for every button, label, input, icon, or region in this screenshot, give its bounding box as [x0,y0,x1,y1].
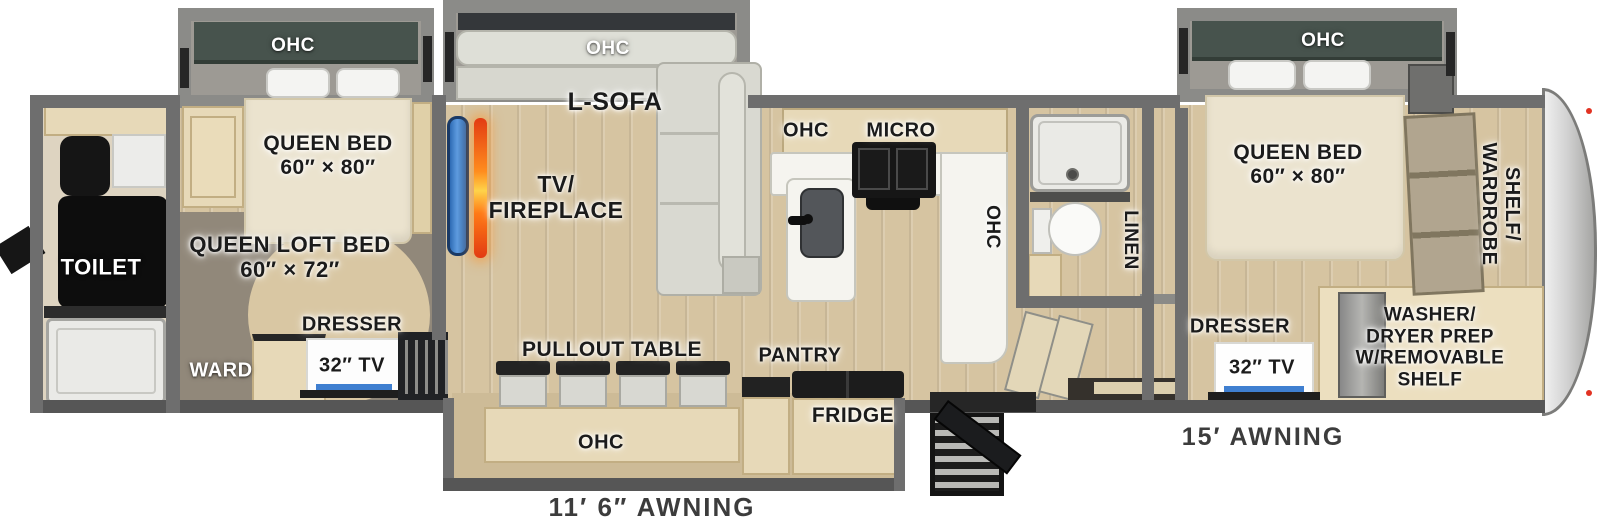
rear-bath-sink [60,136,110,196]
dinette-chair-3 [619,375,667,407]
tv-fireplace-label: TV/ FIREPLACE [489,171,624,223]
wall-bath-right [1142,108,1154,400]
dinette-chair-4-back [676,361,730,375]
awning-left-label: 11′ 6″ AWNING [549,493,756,520]
wall-rear-end [30,95,43,413]
rear-bath-divider [44,306,168,318]
awning-right-label: 15′ AWNING [1182,423,1345,452]
pantry-label: PANTRY [759,345,842,368]
rear-toilet [58,196,168,308]
wall-top-rear [30,95,180,108]
mid-bath-vanity [1028,254,1062,300]
shelf-wardrobe-cabinet [1403,112,1484,296]
ward-label: WARD [189,360,252,383]
pantry-counter-top [742,377,790,397]
sofa-chaise-backroll [718,72,746,272]
rear-bath-counter-nook [112,134,166,188]
front-dresser-label: DRESSER [1190,316,1290,339]
sofa-slide-window [445,32,454,82]
wall-top-mid-2 [748,95,1180,108]
rear-bed-pillow-left [266,68,330,98]
fridge-label: FRIDGE [812,404,894,428]
rear-ohc-label: OHC [271,35,315,57]
kitchen-counter-column [940,152,1008,364]
dinette-chair-1-back [496,361,550,375]
wall-bottom-left [30,400,454,413]
stove-grate-right [896,148,928,190]
linen-label: LINEN [1119,210,1141,270]
dinette-chair-4 [679,375,727,407]
queen-loft-bed-label: QUEEN LOFT BED 60″ × 72″ [189,232,390,282]
mid-toilet-bowl [1048,202,1102,256]
dinette-chair-2 [559,375,607,407]
wall-rearbath-divider [166,95,180,413]
front-slide-window-right [1446,32,1455,76]
toilet-label: TOILET [61,254,142,279]
wall-bedroom2-living [432,106,446,340]
rear-dresser-label: DRESSER [302,314,402,337]
rear-wardrobe-panel [190,116,236,198]
pantry-cabinet [742,397,790,475]
wall-dinette-right [894,398,905,491]
front-slide-window-left [1179,28,1188,74]
dinette-chair-3-back [616,361,670,375]
stair-landing-tread [1094,382,1180,394]
rear-nightstand-strip [412,102,432,234]
tv-unit [447,116,469,256]
wall-top-front [1450,95,1545,108]
stove-vent [866,198,920,210]
shower-ledge [1030,192,1130,202]
shower-drain [1066,168,1079,181]
dinette-ohc-label: OHC [578,432,624,455]
sofa-ohc-label: OHC [586,38,630,60]
shelf-wardrobe-label: SHELF/ WARDROBE [1477,143,1523,266]
dinette-chair-1 [499,375,547,407]
loft-railing [398,332,448,402]
rear-shower-inner [56,328,156,394]
washer-dryer-label: WASHER/ DRYER PREP W/REMOVABLE SHELF [1356,305,1505,392]
rear-tv-label: 32″ TV [319,355,385,378]
rear-slide-window-left [180,48,189,88]
wall-bath-left [1016,108,1029,308]
front-tv-label: 32″ TV [1229,357,1295,380]
sofa-divider-2 [660,202,718,205]
rear-queen-bed-label: QUEEN BED 60″ × 80″ [263,132,392,180]
rear-slide-window-right [423,36,432,82]
fireplace-flame [474,118,487,258]
front-ohc-label: OHC [1301,30,1345,52]
rear-bath-vanity [44,106,168,136]
front-bed-pillow-left [1228,60,1296,90]
rear-bed-pillow-right [336,68,400,98]
rv-floorplan: OHC QUEEN BED 60″ × 80″ TOILET QUEEN LOF… [0,0,1600,520]
marker-light-top [1586,108,1592,114]
sofa-overhead-cabinet [458,13,735,30]
pullout-table-label: PULLOUT TABLE [522,338,702,362]
sofa-corner-cushion [722,256,760,294]
stove-grate-left [858,148,890,190]
wall-front-bedroom-divider [1175,108,1188,400]
kitchen-micro-label: MICRO [866,120,935,143]
marker-light-bottom [1586,390,1592,396]
front-bed-pillow-right [1303,60,1371,90]
wall-dinette-left [443,398,454,490]
island-faucet-knob [803,214,813,224]
rear-tv-stand [300,390,408,398]
front-cap [1542,88,1597,416]
l-sofa-label: L-SOFA [568,88,663,117]
kitchen-counter-ohc-label: OHC [981,205,1003,249]
front-queen-bed-label: QUEEN BED 60″ × 80″ [1233,141,1362,189]
wall-dinette-bottom [443,478,905,491]
kitchen-ohc-label: OHC [783,120,829,143]
fridge-door-divider [846,371,849,398]
mid-shower-inner [1038,121,1122,185]
sofa-divider-1 [660,132,718,135]
front-tv-stand [1208,392,1320,400]
dinette-chair-2-back [556,361,610,375]
wall-bath-bottom [1016,296,1154,308]
